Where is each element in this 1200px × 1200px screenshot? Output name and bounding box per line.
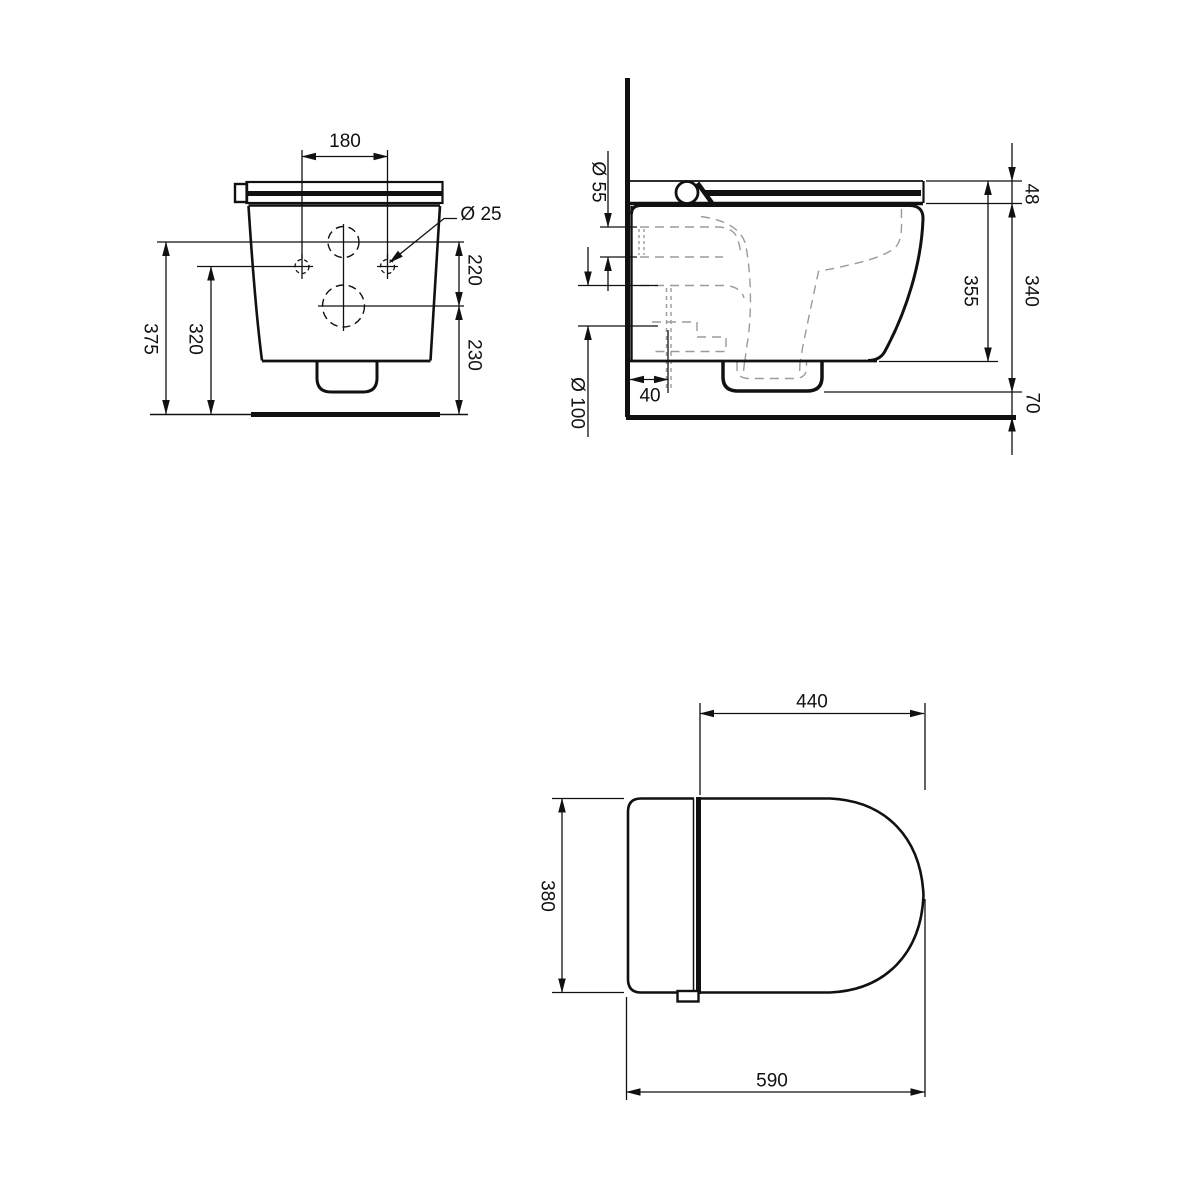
- dim-outlet-diameter: Ø 100: [567, 377, 588, 429]
- dim-320: 320: [185, 323, 206, 355]
- side-view: Ø 55 Ø 100 40 48 340 355 70: [567, 78, 1043, 455]
- side-dimensions: [588, 143, 1012, 455]
- dim-220: 220: [464, 254, 485, 286]
- seat-side: [629, 181, 924, 204]
- dim-340: 340: [1021, 275, 1042, 307]
- dim-355: 355: [960, 275, 981, 307]
- outlet-front: [317, 361, 377, 392]
- hinge-circle: [676, 182, 698, 204]
- dim-inlet-diameter: Ø 55: [588, 161, 609, 202]
- seat-hinge-tab: [235, 184, 247, 202]
- dim-440: 440: [796, 692, 828, 713]
- outlet-side: [723, 362, 822, 392]
- dim-70: 70: [1022, 392, 1043, 413]
- top-view: 440 380 590: [537, 692, 926, 1101]
- flush-tab-top: [678, 991, 699, 1002]
- dim-230: 230: [464, 339, 485, 371]
- bowl-top: [700, 799, 924, 993]
- front-view: 180 Ø 25 220 230 320 375: [140, 131, 502, 415]
- top-extension-lines: [552, 703, 925, 1100]
- dim-hole-diameter: Ø 25: [460, 204, 501, 225]
- dim-375: 375: [140, 323, 161, 355]
- top-dimensions: [562, 714, 925, 1093]
- front-dimensions: [166, 150, 459, 414]
- dim-40: 40: [639, 386, 660, 407]
- dimension-drawing: 180 Ø 25 220 230 320 375: [0, 0, 1200, 1200]
- bowl-body-side: [630, 206, 923, 392]
- bowl-body-front: [249, 206, 441, 393]
- technical-drawing-sheet: 180 Ø 25 220 230 320 375: [0, 0, 1200, 1200]
- dim-48: 48: [1021, 183, 1042, 204]
- dim-hole-spacing: 180: [329, 131, 361, 152]
- dim-590: 590: [756, 1071, 788, 1092]
- dim-380: 380: [537, 880, 558, 912]
- tank-top: [628, 799, 694, 993]
